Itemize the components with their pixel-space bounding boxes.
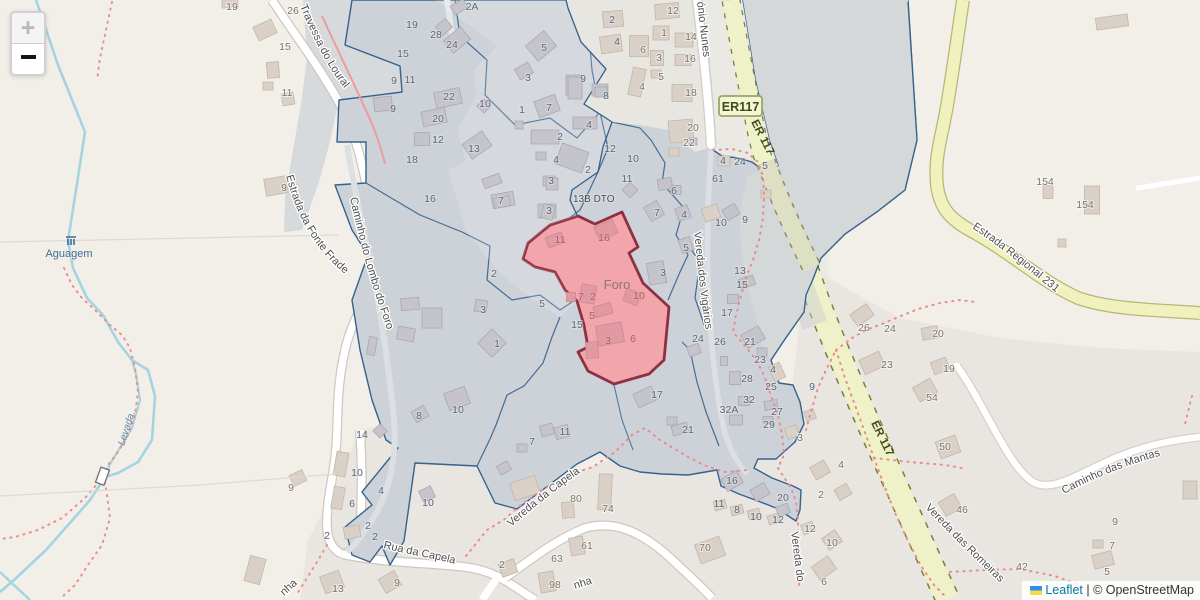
svg-text:4: 4 (553, 154, 559, 166)
svg-text:19: 19 (226, 1, 238, 13)
svg-text:12: 12 (667, 5, 679, 17)
svg-text:15: 15 (571, 319, 583, 331)
svg-text:5: 5 (541, 42, 547, 54)
svg-text:4: 4 (586, 119, 592, 131)
svg-text:19: 19 (406, 19, 418, 31)
svg-text:2: 2 (609, 14, 615, 26)
svg-text:11: 11 (555, 234, 566, 246)
svg-text:32: 32 (743, 394, 755, 406)
svg-text:Foro: Foro (604, 277, 631, 292)
svg-text:29: 29 (763, 419, 775, 431)
svg-text:16: 16 (726, 475, 738, 487)
svg-text:54: 54 (926, 392, 938, 404)
svg-text:9: 9 (390, 103, 396, 115)
svg-text:9: 9 (1112, 516, 1118, 528)
svg-text:15: 15 (279, 41, 291, 53)
svg-text:7: 7 (498, 195, 504, 207)
svg-text:9: 9 (742, 214, 748, 226)
svg-text:28: 28 (430, 29, 442, 41)
svg-text:24: 24 (692, 333, 704, 345)
svg-text:10: 10 (422, 497, 434, 509)
svg-text:26: 26 (714, 336, 726, 348)
svg-text:12: 12 (772, 514, 784, 526)
svg-text:20: 20 (777, 492, 789, 504)
svg-text:13B DTO: 13B DTO (573, 194, 615, 205)
svg-text:5: 5 (589, 310, 595, 322)
svg-text:46: 46 (956, 504, 968, 516)
svg-text:1: 1 (494, 338, 500, 350)
svg-text:3: 3 (656, 52, 662, 64)
svg-text:6: 6 (671, 185, 677, 197)
svg-text:11: 11 (405, 74, 416, 86)
svg-text:154: 154 (1076, 199, 1094, 211)
svg-text:5: 5 (1104, 566, 1110, 578)
svg-text:1: 1 (661, 27, 667, 39)
svg-text:63: 63 (551, 553, 563, 565)
svg-text:154: 154 (1036, 176, 1054, 188)
svg-text:10: 10 (715, 217, 727, 229)
svg-text:10: 10 (826, 537, 838, 549)
svg-text:9: 9 (288, 482, 294, 494)
svg-text:16: 16 (424, 193, 436, 205)
svg-text:6: 6 (630, 333, 636, 345)
svg-text:4: 4 (720, 155, 726, 167)
svg-text:9: 9 (391, 75, 397, 87)
svg-text:ER117: ER117 (722, 100, 760, 114)
svg-text:9: 9 (394, 577, 400, 589)
svg-text:2: 2 (372, 531, 378, 543)
svg-text:16: 16 (598, 232, 610, 244)
svg-text:17: 17 (651, 389, 663, 401)
svg-text:14: 14 (685, 31, 697, 43)
svg-text:8: 8 (416, 410, 422, 422)
svg-text:50: 50 (939, 441, 951, 453)
svg-text:10: 10 (750, 511, 762, 523)
svg-text:61: 61 (712, 173, 724, 185)
svg-text:24: 24 (734, 156, 746, 168)
svg-text:11: 11 (560, 426, 571, 438)
svg-text:2: 2 (491, 268, 497, 280)
svg-text:20: 20 (687, 122, 699, 134)
svg-text:5: 5 (658, 71, 664, 83)
svg-text:2: 2 (818, 489, 824, 501)
svg-text:8: 8 (603, 90, 609, 102)
svg-text:22: 22 (443, 91, 455, 103)
svg-text:26: 26 (287, 5, 299, 17)
svg-text:11: 11 (282, 87, 293, 99)
svg-text:5: 5 (762, 160, 768, 172)
svg-text:5: 5 (539, 298, 545, 310)
svg-text:7: 7 (529, 436, 535, 448)
svg-text:11: 11 (714, 498, 725, 510)
svg-text:18: 18 (406, 154, 418, 166)
svg-text:42: 42 (1016, 561, 1028, 573)
svg-text:28: 28 (741, 373, 753, 385)
svg-text:7: 7 (1109, 540, 1115, 552)
svg-text:7: 7 (546, 102, 552, 114)
svg-text:74: 74 (602, 503, 614, 515)
svg-text:2: 2 (585, 164, 591, 176)
svg-text:4: 4 (378, 485, 384, 497)
svg-text:9: 9 (580, 73, 586, 85)
svg-text:12: 12 (804, 523, 816, 535)
svg-text:12: 12 (432, 134, 444, 146)
svg-text:2: 2 (324, 530, 330, 542)
svg-text:13: 13 (332, 583, 344, 595)
svg-text:3: 3 (660, 267, 666, 279)
svg-text:98: 98 (549, 579, 561, 591)
svg-text:80: 80 (570, 493, 582, 505)
svg-text:10: 10 (633, 290, 645, 302)
svg-text:2A: 2A (466, 1, 479, 13)
svg-text:23: 23 (881, 359, 893, 371)
svg-text:18: 18 (685, 87, 697, 99)
svg-text:13: 13 (734, 265, 746, 277)
svg-text:3: 3 (548, 175, 554, 187)
svg-text:21: 21 (682, 424, 694, 436)
svg-text:7: 7 (578, 291, 584, 303)
svg-text:15: 15 (397, 48, 409, 60)
svg-text:2: 2 (499, 559, 505, 571)
svg-text:6: 6 (349, 498, 355, 510)
svg-text:12: 12 (604, 143, 616, 155)
svg-text:1: 1 (519, 104, 525, 116)
svg-text:10: 10 (351, 467, 363, 479)
svg-text:10: 10 (627, 153, 639, 165)
svg-text:2: 2 (365, 520, 371, 532)
svg-text:70: 70 (699, 542, 711, 554)
svg-text:13: 13 (468, 143, 480, 155)
svg-text:3: 3 (797, 432, 803, 444)
svg-text:5: 5 (683, 242, 689, 254)
svg-text:2: 2 (557, 131, 563, 143)
svg-text:19: 19 (943, 363, 955, 375)
svg-text:9: 9 (809, 381, 815, 393)
svg-text:3: 3 (525, 72, 531, 84)
svg-text:3: 3 (480, 304, 486, 316)
svg-text:25: 25 (765, 381, 777, 393)
svg-text:8: 8 (734, 504, 740, 516)
svg-text:6: 6 (640, 44, 646, 56)
svg-text:3: 3 (605, 335, 611, 347)
svg-text:15: 15 (736, 279, 748, 291)
svg-text:7: 7 (654, 207, 660, 219)
svg-text:3: 3 (546, 205, 552, 217)
svg-text:61: 61 (581, 540, 593, 552)
svg-text:4: 4 (614, 36, 620, 48)
svg-text:22: 22 (683, 137, 695, 149)
svg-text:32A: 32A (720, 404, 739, 416)
svg-text:17: 17 (721, 307, 733, 319)
svg-text:4: 4 (639, 81, 645, 93)
svg-text:20: 20 (932, 328, 944, 340)
svg-text:24: 24 (884, 323, 896, 335)
svg-text:4: 4 (681, 209, 687, 221)
svg-text:10: 10 (452, 404, 464, 416)
svg-text:2: 2 (590, 291, 596, 303)
svg-text:23: 23 (754, 354, 766, 366)
svg-text:Aguagem: Aguagem (45, 248, 92, 260)
svg-text:4: 4 (770, 364, 776, 376)
svg-text:14: 14 (356, 429, 368, 441)
svg-text:20: 20 (432, 113, 444, 125)
svg-text:16: 16 (684, 53, 696, 65)
svg-text:6: 6 (821, 576, 827, 588)
svg-text:11: 11 (622, 173, 633, 185)
svg-text:4: 4 (838, 459, 844, 471)
svg-text:24: 24 (446, 39, 458, 51)
svg-text:10: 10 (479, 98, 491, 110)
